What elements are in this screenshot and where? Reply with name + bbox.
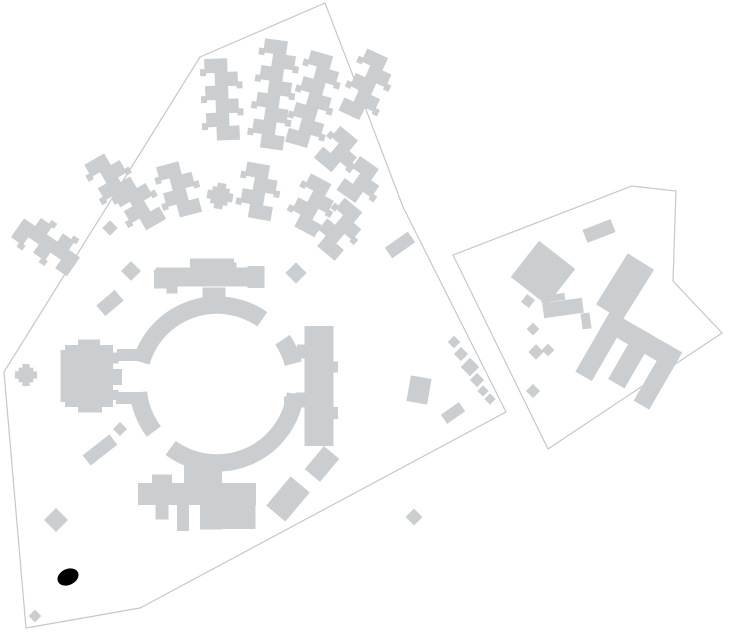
- west-hall-wing: [61, 350, 68, 402]
- diamond-4: [44, 508, 68, 532]
- east-tower-stub-1: [287, 348, 307, 359]
- west-hall-tab-top: [78, 340, 100, 349]
- circular-ring-building: [138, 305, 295, 463]
- north-bar-tab-east: [226, 263, 237, 270]
- south-wing-connector: [184, 463, 222, 485]
- east-parcel-square: [511, 241, 576, 306]
- diamond-chain-2: [454, 347, 468, 361]
- marker-layer: [55, 565, 82, 589]
- diamond-chain-1: [448, 336, 461, 349]
- plus-pavilion-west: [15, 364, 37, 386]
- building-footprints: [8, 38, 682, 623]
- plus-pavilion-inner: [205, 181, 235, 211]
- diamond-chain-3: [461, 358, 479, 376]
- east-parcel-e-building: [575, 311, 682, 413]
- edge-bar: [441, 402, 465, 424]
- site-map[interactable]: [0, 0, 734, 639]
- diamond-6: [406, 509, 423, 526]
- north-bar-stub-2: [209, 298, 222, 306]
- zigzag-inner-mid: [233, 161, 284, 222]
- diamond-3: [102, 220, 118, 236]
- east-tower-bump-3: [332, 362, 338, 373]
- east-parcel-tall: [596, 253, 654, 320]
- south-wing-prong-1: [156, 505, 169, 520]
- north-bar-cap-west: [154, 270, 170, 289]
- east-tower-main: [305, 326, 334, 446]
- diamond-7: [113, 422, 127, 436]
- location-marker[interactable]: [55, 565, 82, 589]
- west-hall-bump-2: [110, 369, 122, 385]
- southwest-bar: [83, 434, 118, 465]
- ring-segment: [141, 305, 262, 362]
- site-plan-stage: [0, 0, 734, 639]
- north-bar-nub-west: [167, 287, 178, 294]
- west-hall-tab-bottom: [78, 404, 102, 413]
- diamond-east-2: [528, 344, 544, 360]
- diamond-east-1: [527, 323, 540, 336]
- diamond-chain-6: [484, 393, 495, 404]
- diamond-1: [121, 261, 141, 281]
- zigzag-far-west: [8, 206, 88, 280]
- ring-segment: [138, 392, 154, 431]
- lone-east-bar: [385, 232, 415, 259]
- west-hall-link-bottom: [116, 392, 140, 404]
- east-tower-stub-2: [284, 397, 306, 408]
- ring-segment: [171, 394, 296, 463]
- southeast-rect-1: [305, 446, 340, 482]
- south-wing-right: [219, 503, 256, 529]
- west-hall-main: [65, 345, 113, 407]
- west-hall-link-top: [117, 349, 143, 361]
- diamond-east-4: [526, 384, 540, 398]
- east-parcel-smallsq: [521, 294, 535, 308]
- edge-rect: [406, 375, 431, 404]
- zigzag-north-1: [200, 58, 245, 141]
- diamond-east-3: [542, 344, 555, 357]
- east-parcel-top-bar: [582, 219, 615, 243]
- south-wing-tab: [152, 475, 172, 484]
- south-wing-slab: [138, 483, 256, 505]
- southeast-rect-2: [266, 476, 310, 521]
- diamond-2: [285, 262, 306, 283]
- diamond-5: [29, 610, 42, 623]
- east-parcel-nub: [580, 312, 591, 329]
- northwest-bar: [96, 290, 123, 316]
- diamond-chain-4: [470, 373, 484, 387]
- east-tower-bump-4: [332, 407, 338, 419]
- north-bar-cap-east: [248, 266, 265, 288]
- diamond-chain-5: [477, 385, 488, 396]
- south-wing-prong-2: [177, 505, 189, 531]
